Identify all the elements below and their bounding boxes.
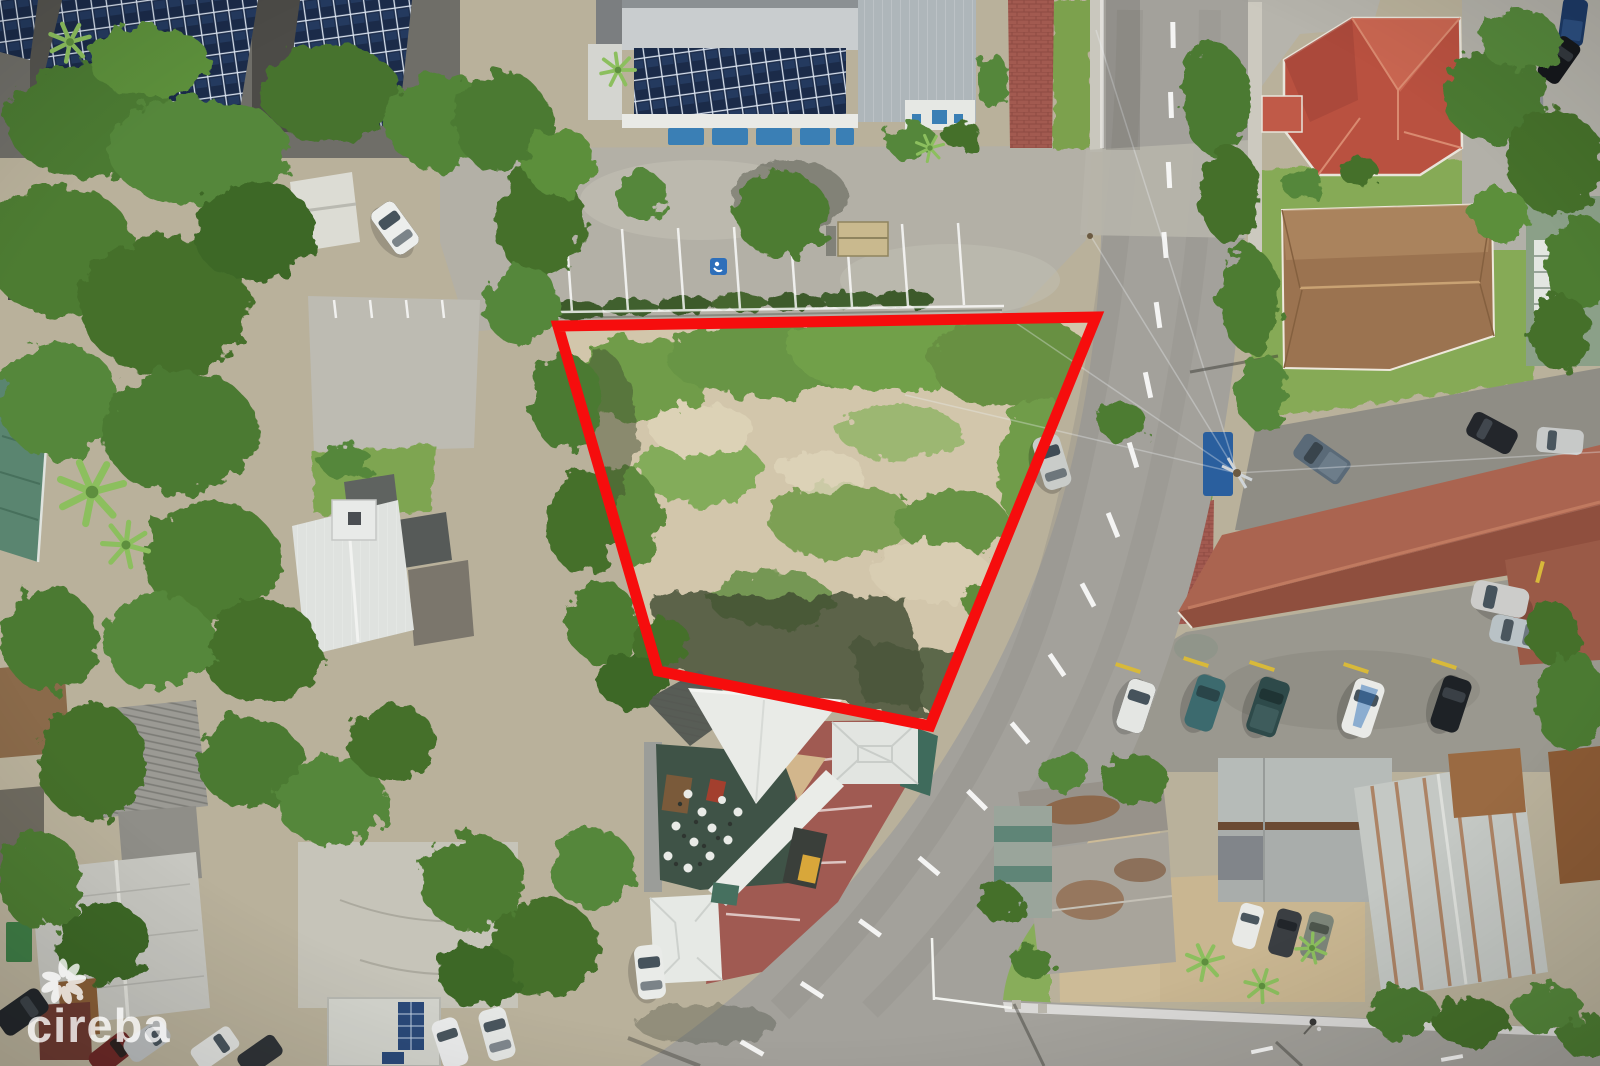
watermark-text: cireba <box>26 999 170 1052</box>
aerial-photo: cireba <box>0 0 1600 1066</box>
photo-vignette <box>0 0 1600 1066</box>
